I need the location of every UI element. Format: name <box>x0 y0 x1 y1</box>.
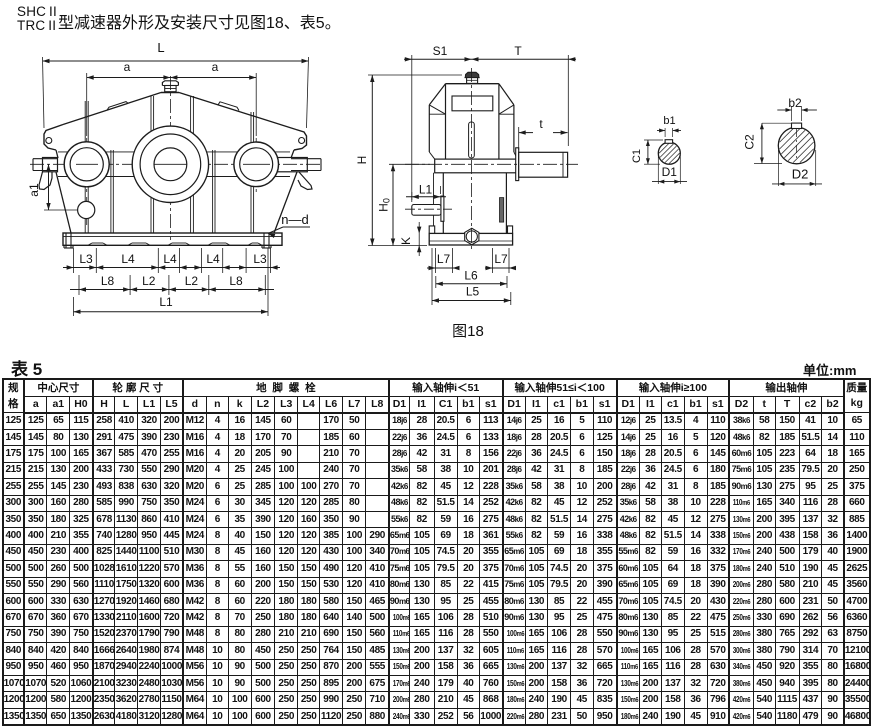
svg-text:b2: b2 <box>788 96 802 110</box>
svg-text:a: a <box>124 60 131 74</box>
svg-text:C1: C1 <box>631 149 643 163</box>
svg-text:L5: L5 <box>466 285 480 299</box>
svg-text:L2: L2 <box>142 274 156 288</box>
svg-text:图18: 图18 <box>452 323 484 340</box>
svg-text:a: a <box>212 60 219 74</box>
svg-text:L3: L3 <box>253 252 267 266</box>
svg-text:C2: C2 <box>743 134 757 150</box>
svg-text:H: H <box>355 156 369 165</box>
svg-text:L: L <box>157 40 164 55</box>
svg-text:H0: H0 <box>377 198 392 212</box>
svg-text:L2: L2 <box>185 274 199 288</box>
svg-text:L1: L1 <box>419 183 433 197</box>
svg-text:K: K <box>399 237 413 245</box>
svg-text:L4: L4 <box>206 252 220 266</box>
svg-text:L1: L1 <box>159 295 173 309</box>
svg-text:n—d: n—d <box>281 212 308 227</box>
svg-text:D2: D2 <box>792 167 809 182</box>
svg-text:L7: L7 <box>437 252 451 266</box>
svg-text:T: T <box>514 44 522 58</box>
svg-text:L4: L4 <box>163 252 177 266</box>
svg-text:L8: L8 <box>229 274 243 288</box>
svg-text:D1: D1 <box>662 165 678 179</box>
svg-text:L4: L4 <box>121 252 135 266</box>
svg-text:b1: b1 <box>663 115 675 127</box>
svg-text:L6: L6 <box>464 269 478 283</box>
svg-text:a1: a1 <box>27 183 41 197</box>
svg-text:L7: L7 <box>494 252 508 266</box>
svg-text:L8: L8 <box>101 274 115 288</box>
svg-text:S1: S1 <box>433 44 448 58</box>
svg-text:L3: L3 <box>79 252 93 266</box>
svg-text:t: t <box>539 117 543 131</box>
